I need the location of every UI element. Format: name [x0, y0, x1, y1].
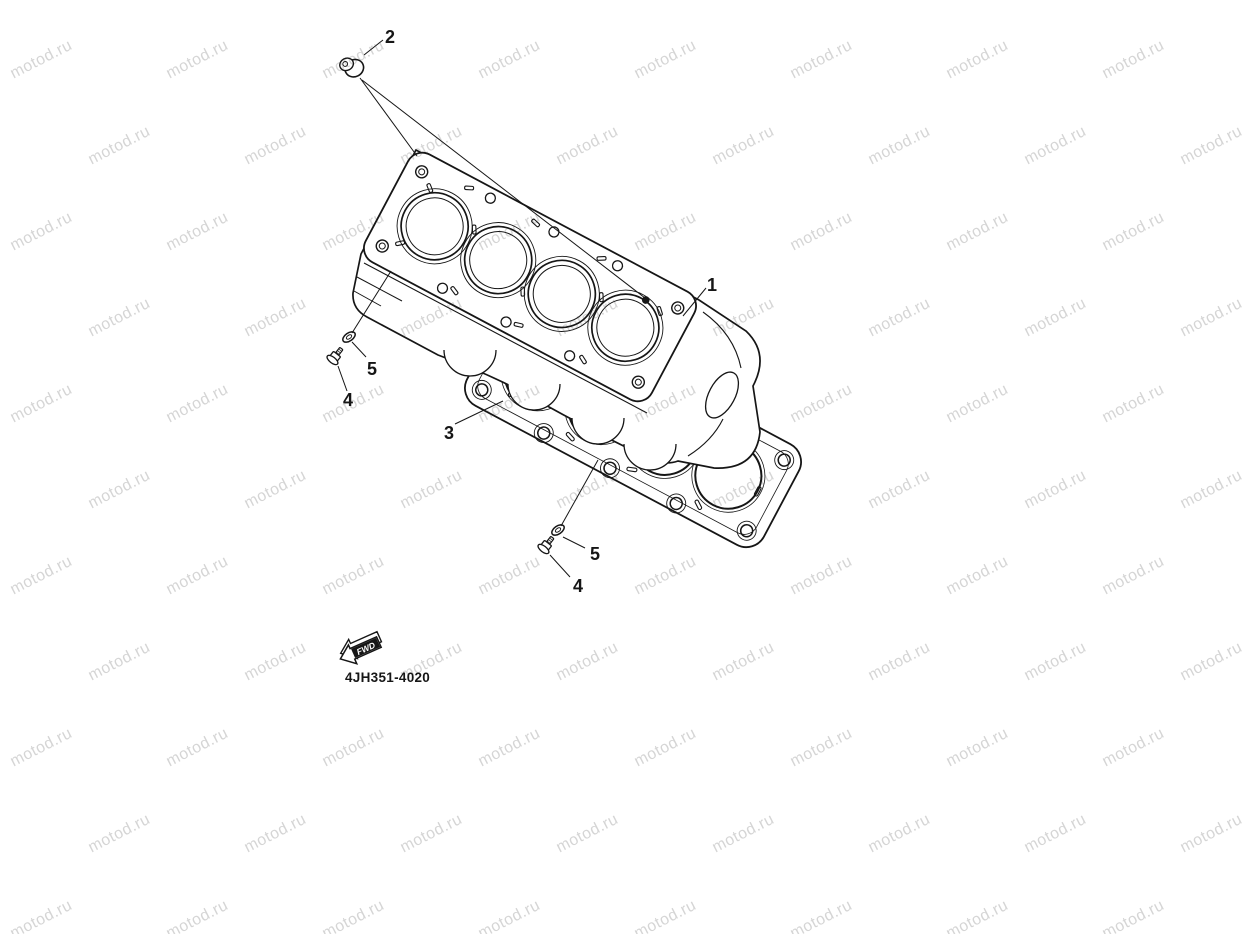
parts-diagram-page: 2 1 3 5 4 5 4 FWD 4JH351-4020 motod.rumo… [0, 0, 1245, 934]
callout-2: 2 [385, 27, 395, 47]
bolt-upper [325, 345, 346, 367]
plug [338, 52, 367, 81]
drawing-code: 4JH351-4020 [345, 670, 430, 685]
callout-4-upper: 4 [343, 390, 353, 410]
bolt-lower [536, 534, 557, 556]
callout-3: 3 [444, 423, 454, 443]
washer-lower [550, 523, 566, 538]
callout-5-lower: 5 [590, 544, 600, 564]
washer-upper [341, 330, 357, 345]
diagram-svg: 2 1 3 5 4 5 4 FWD 4JH351-4020 [0, 0, 1245, 934]
fwd-arrow-icon: FWD [335, 628, 386, 669]
callout-5-upper: 5 [367, 359, 377, 379]
callout-1: 1 [707, 275, 717, 295]
callout-4-lower: 4 [573, 576, 583, 596]
